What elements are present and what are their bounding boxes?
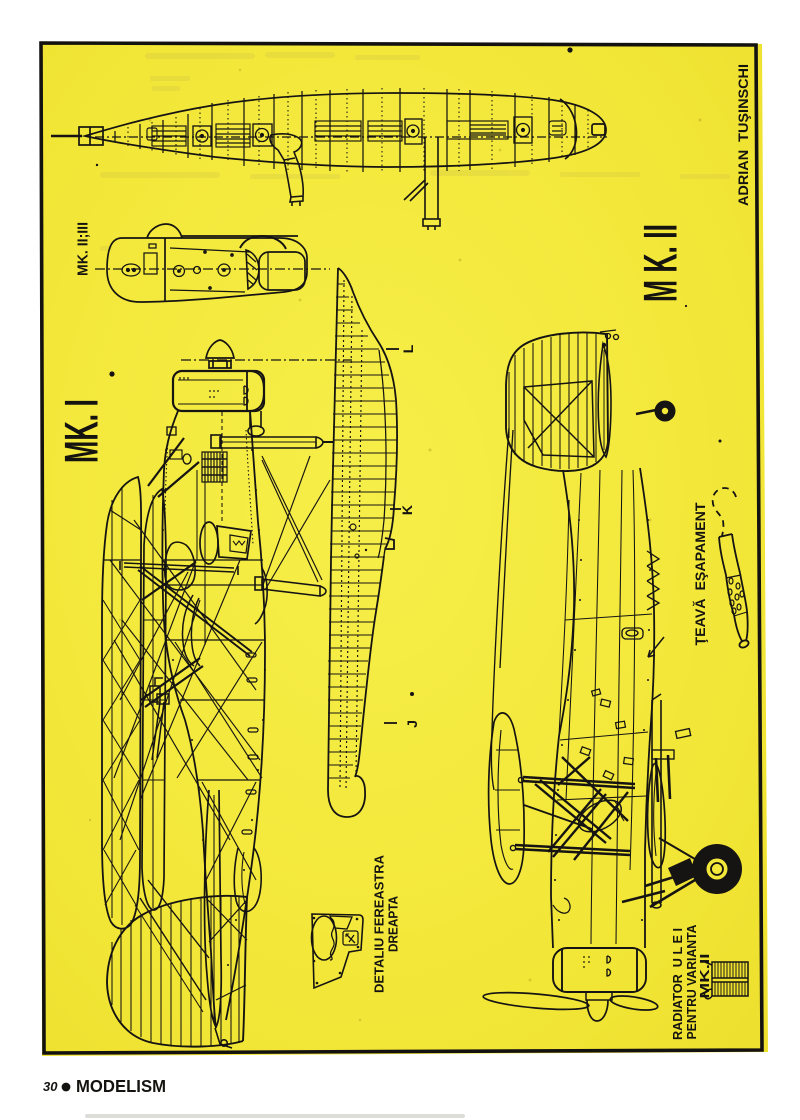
svg-text:MK. II;III: MK. II;III bbox=[75, 222, 92, 276]
svg-text:K: K bbox=[399, 505, 415, 515]
svg-text:PENTRU VARIANTA: PENTRU VARIANTA bbox=[685, 925, 699, 1040]
svg-text:DREAPTA: DREAPTA bbox=[386, 895, 401, 952]
svg-text:MODELISM: MODELISM bbox=[76, 1076, 166, 1096]
svg-text:L: L bbox=[400, 344, 416, 353]
svg-text:ŢEAVĂ EŞAPAMENT: ŢEAVĂ EŞAPAMENT bbox=[692, 502, 708, 645]
svg-text:J: J bbox=[404, 720, 420, 728]
svg-text:RADIATOR U L E I: RADIATOR U L E I bbox=[671, 928, 685, 1040]
svg-text:ADRIAN TUŞINSCHI: ADRIAN TUŞINSCHI bbox=[735, 64, 751, 206]
svg-text:30: 30 bbox=[43, 1079, 58, 1094]
svg-text:MK. I: MK. I bbox=[55, 399, 108, 463]
svg-text:DETALIU FEREASTRA: DETALIU FEREASTRA bbox=[372, 854, 387, 993]
svg-text:M K. II: M K. II bbox=[634, 224, 687, 302]
svg-text:MK.II: MK.II bbox=[698, 954, 712, 999]
